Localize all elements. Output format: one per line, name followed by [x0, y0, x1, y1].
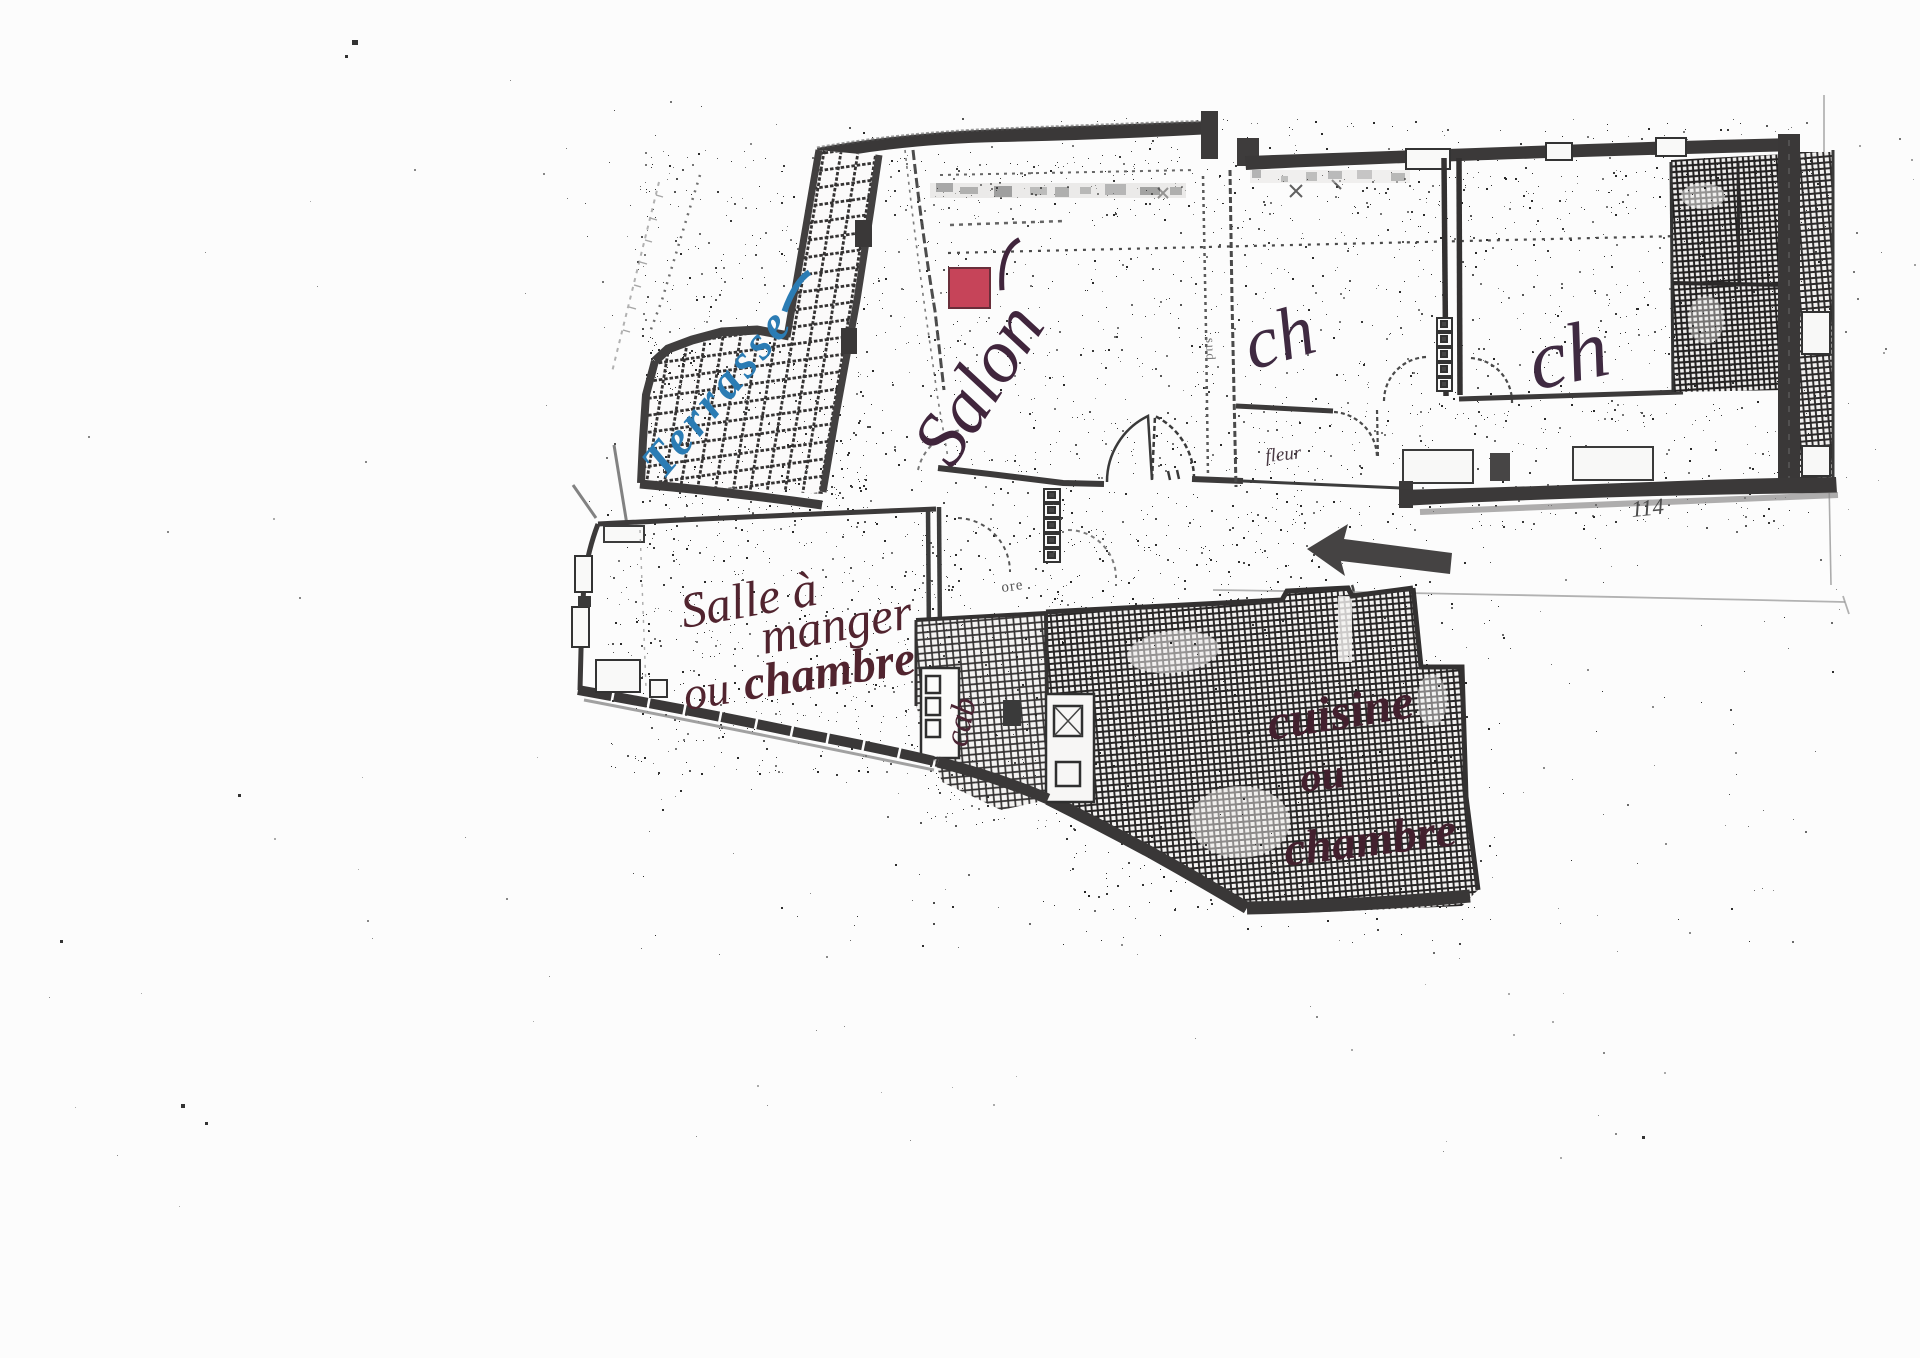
svg-text:ou: ou — [1298, 751, 1348, 802]
svg-text:sud: sud — [1203, 338, 1219, 363]
svg-text:ou: ou — [680, 662, 733, 720]
svg-text:fleur: fleur — [1264, 442, 1302, 467]
svg-text:114: 114 — [1630, 494, 1665, 522]
svg-text:ore: ore — [1000, 577, 1024, 596]
